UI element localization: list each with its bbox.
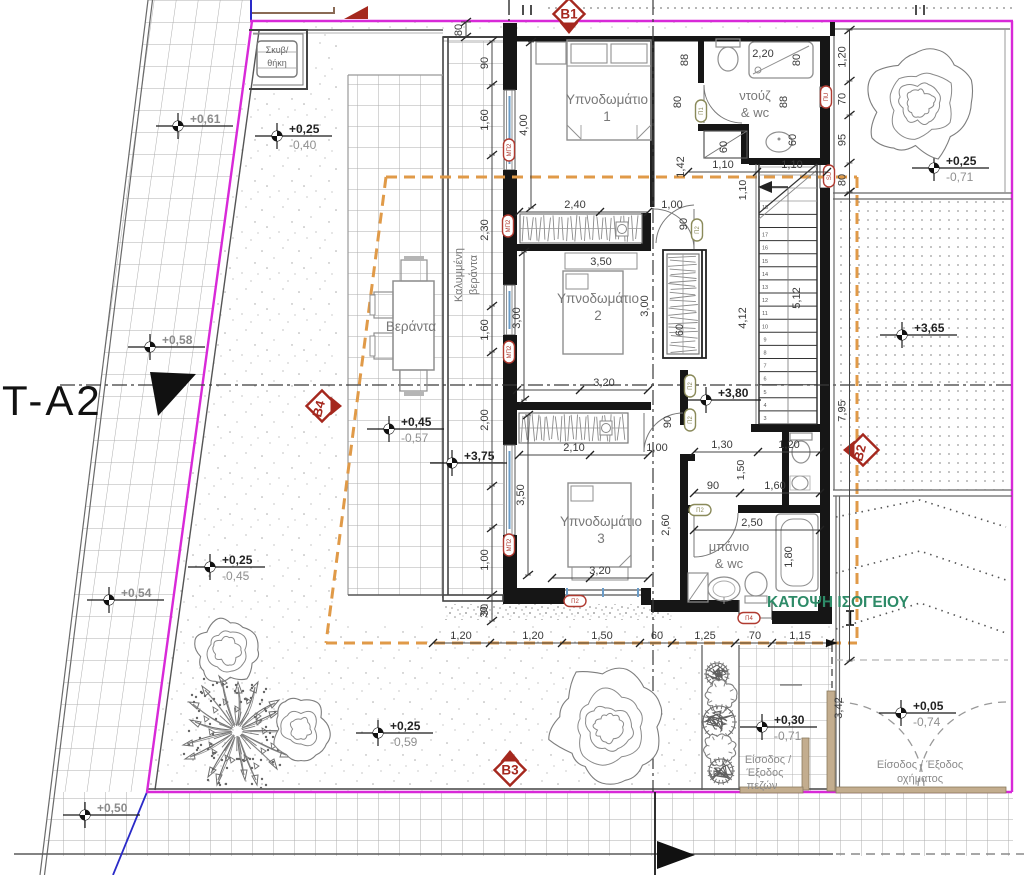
svg-text:1,00: 1,00 (646, 442, 667, 454)
svg-text:Π2: Π2 (696, 508, 704, 514)
svg-text:+3,65: +3,65 (914, 321, 945, 335)
svg-text:Υπνοδωμάτιο: Υπνοδωμάτιο (557, 291, 639, 306)
svg-text:80: 80 (837, 174, 849, 186)
svg-text:+0,45: +0,45 (401, 415, 432, 429)
svg-text:1,10: 1,10 (781, 159, 802, 171)
svg-text:Β3: Β3 (501, 763, 519, 778)
svg-text:2,00: 2,00 (479, 409, 491, 430)
svg-text:πεζών: πεζών (747, 780, 778, 792)
svg-text:60: 60 (651, 630, 663, 642)
svg-text:Είσοδος / Έξοδος: Είσοδος / Έξοδος (877, 759, 963, 771)
svg-text:4,00: 4,00 (518, 114, 530, 135)
svg-text:1,00: 1,00 (661, 199, 682, 211)
svg-text:ΜΠ2: ΜΠ2 (507, 345, 513, 358)
svg-text:17: 17 (762, 233, 768, 239)
svg-text:60: 60 (674, 324, 686, 336)
svg-text:-0,74: -0,74 (913, 715, 941, 729)
svg-text:70: 70 (837, 93, 849, 105)
svg-text:μπάνιο: μπάνιο (709, 539, 749, 554)
svg-text:15: 15 (762, 259, 768, 265)
svg-text:Π2: Π2 (695, 226, 701, 234)
svg-text:1,25: 1,25 (694, 630, 715, 642)
svg-text:T-A2: T-A2 (2, 377, 103, 424)
svg-text:Καλυμμένη: Καλυμμένη (453, 248, 465, 302)
svg-text:1,15: 1,15 (789, 630, 810, 642)
svg-text:3: 3 (597, 531, 605, 546)
svg-text:30: 30 (479, 606, 490, 618)
svg-text:9: 9 (763, 337, 766, 343)
svg-text:Β1: Β1 (560, 7, 578, 22)
svg-text:8: 8 (763, 351, 766, 357)
svg-text:+0,54: +0,54 (121, 586, 152, 600)
svg-text:5,12: 5,12 (791, 287, 803, 308)
svg-text:80: 80 (791, 54, 803, 66)
svg-text:1,10: 1,10 (737, 180, 749, 201)
svg-text:2,30: 2,30 (479, 219, 491, 240)
svg-text:1,20: 1,20 (522, 630, 543, 642)
svg-text:5: 5 (763, 390, 766, 396)
svg-text:Βεράντα: Βεράντα (386, 319, 436, 334)
svg-text:Π2: Π2 (688, 416, 694, 424)
svg-text:3,00: 3,00 (511, 307, 523, 328)
svg-text:90: 90 (662, 416, 674, 428)
svg-text:1,20: 1,20 (778, 439, 799, 451)
svg-text:βεράντα: βεράντα (468, 254, 480, 295)
svg-text:θήκη: θήκη (267, 58, 287, 68)
svg-text:3: 3 (763, 416, 766, 422)
svg-text:-0,71: -0,71 (946, 170, 974, 184)
svg-text:70: 70 (749, 630, 761, 642)
svg-text:7: 7 (763, 364, 766, 370)
svg-text:+3,75: +3,75 (464, 449, 495, 463)
svg-text:-0,71: -0,71 (774, 729, 802, 743)
svg-text:88: 88 (778, 96, 790, 108)
svg-text:6: 6 (763, 377, 766, 383)
svg-text:+0,25: +0,25 (222, 553, 253, 567)
svg-text:Είσοδος /: Είσοδος / (745, 754, 792, 766)
svg-text:88: 88 (679, 54, 691, 66)
svg-text:4: 4 (763, 403, 766, 409)
svg-text:80: 80 (672, 96, 684, 108)
svg-text:& wc: & wc (715, 556, 744, 571)
svg-text:13: 13 (762, 285, 768, 291)
svg-text:7,95: 7,95 (837, 400, 849, 421)
svg-text:3,50: 3,50 (515, 484, 527, 505)
svg-text:ΜΠ2: ΜΠ2 (507, 143, 513, 156)
svg-text:-0,40: -0,40 (289, 138, 317, 152)
svg-text:ντούζ: ντούζ (739, 88, 771, 103)
svg-text:& wc: & wc (741, 105, 770, 120)
svg-text:Υπνοδωμάτιο: Υπνοδωμάτιο (560, 514, 642, 529)
svg-text:-0,45: -0,45 (222, 569, 250, 583)
svg-text:+3,80: +3,80 (718, 386, 749, 400)
svg-text:2,10: 2,10 (563, 442, 584, 454)
svg-text:2: 2 (594, 308, 602, 323)
svg-text:1,60: 1,60 (479, 319, 491, 340)
svg-text:12: 12 (762, 298, 768, 304)
svg-text:60: 60 (787, 134, 799, 146)
svg-text:ΜΠ2: ΜΠ2 (506, 219, 512, 232)
svg-text:11: 11 (762, 311, 768, 317)
svg-text:10: 10 (762, 324, 768, 330)
svg-text:1,60: 1,60 (764, 480, 785, 492)
svg-text:+0,61: +0,61 (190, 112, 221, 126)
svg-text:Σκυβ/: Σκυβ/ (266, 45, 289, 55)
svg-text:Υπνοδωμάτιο: Υπνοδωμάτιο (566, 92, 648, 107)
svg-text:Π1: Π1 (699, 107, 705, 115)
svg-text:1: 1 (603, 109, 611, 124)
svg-text:1,20: 1,20 (837, 46, 849, 67)
svg-text:3,42: 3,42 (833, 697, 845, 718)
svg-text:+0,05: +0,05 (913, 699, 944, 713)
svg-text:1,80: 1,80 (783, 546, 795, 567)
svg-text:ΜΠ2: ΜΠ2 (507, 538, 513, 551)
svg-text:-0,59: -0,59 (390, 735, 418, 749)
svg-text:1,30: 1,30 (711, 439, 732, 451)
svg-text:1,60: 1,60 (479, 109, 491, 130)
svg-text:3,20: 3,20 (589, 565, 610, 577)
svg-text:14: 14 (762, 272, 768, 278)
svg-text:2,40: 2,40 (564, 199, 585, 211)
svg-text:4,12: 4,12 (737, 307, 749, 328)
svg-text:+0,30: +0,30 (774, 713, 805, 727)
svg-text:60: 60 (718, 141, 730, 153)
svg-text:1,10: 1,10 (712, 159, 733, 171)
svg-text:3,00: 3,00 (639, 295, 651, 316)
svg-text:οχήματος: οχήματος (897, 773, 943, 785)
svg-text:1,00: 1,00 (479, 549, 491, 570)
svg-text:-0,57: -0,57 (401, 431, 429, 445)
svg-text:2,20: 2,20 (752, 48, 773, 60)
svg-text:90: 90 (479, 57, 491, 69)
svg-text:2,60: 2,60 (660, 514, 672, 535)
svg-text:+0,25: +0,25 (390, 719, 421, 733)
svg-text:Έξοδος: Έξοδος (746, 767, 784, 779)
svg-text:90: 90 (678, 218, 690, 230)
svg-text:1,50: 1,50 (735, 460, 747, 481)
svg-text:SU: SU (827, 172, 833, 180)
svg-text:+0,25: +0,25 (946, 154, 977, 168)
svg-text:2,50: 2,50 (741, 517, 762, 529)
svg-text:90: 90 (707, 480, 719, 492)
svg-text:95: 95 (837, 134, 849, 146)
svg-text:ΚΑΤΟΨΗ ΙΣΟΓΕΙΟΥ: ΚΑΤΟΨΗ ΙΣΟΓΕΙΟΥ (767, 594, 910, 611)
svg-text:16: 16 (762, 246, 768, 252)
svg-text:ΠU: ΠU (824, 93, 830, 102)
svg-text:1,20: 1,20 (450, 630, 471, 642)
svg-text:Π2: Π2 (571, 599, 579, 605)
svg-text:3,50: 3,50 (590, 256, 611, 268)
svg-text:1,50: 1,50 (591, 630, 612, 642)
svg-text:3,20: 3,20 (593, 377, 614, 389)
svg-text:+0,58: +0,58 (162, 333, 193, 347)
svg-text:+0,50: +0,50 (97, 801, 128, 815)
svg-text:+0,25: +0,25 (289, 122, 320, 136)
svg-text:80: 80 (453, 24, 465, 36)
svg-text:Π2: Π2 (688, 382, 694, 390)
svg-text:Π4: Π4 (745, 616, 753, 622)
